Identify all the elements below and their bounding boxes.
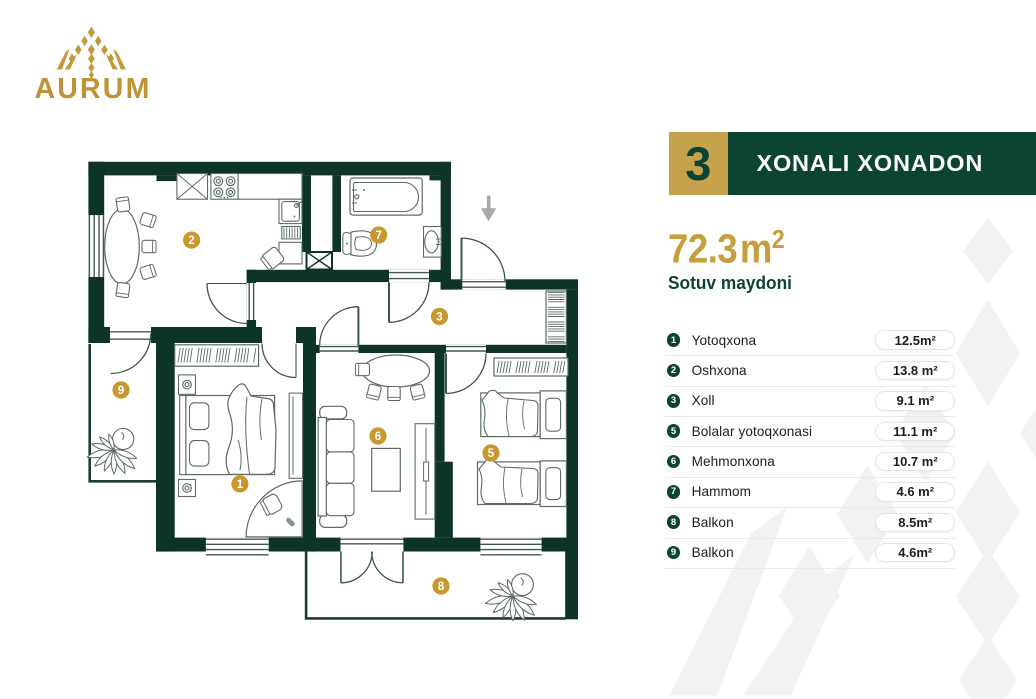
svg-text:AURUM: AURUM <box>34 73 151 105</box>
svg-text:2: 2 <box>188 235 194 247</box>
svg-text:3: 3 <box>436 311 442 323</box>
svg-text:9: 9 <box>118 385 124 397</box>
svg-text:6: 6 <box>375 431 381 443</box>
svg-text:5: 5 <box>488 448 495 460</box>
svg-text:7: 7 <box>375 230 381 242</box>
svg-text:1: 1 <box>237 479 244 491</box>
svg-text:8: 8 <box>438 581 445 593</box>
